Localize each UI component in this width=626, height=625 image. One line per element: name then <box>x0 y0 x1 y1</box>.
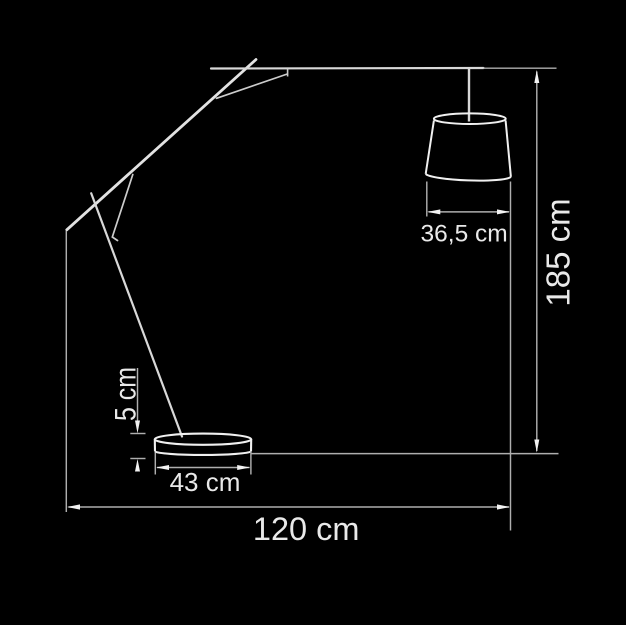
svg-text:120 cm: 120 cm <box>253 511 360 547</box>
svg-text:36,5 cm: 36,5 cm <box>421 220 508 247</box>
svg-text:43 cm: 43 cm <box>170 467 241 497</box>
svg-text:5 cm: 5 cm <box>108 367 142 421</box>
svg-text:185 cm: 185 cm <box>540 198 577 306</box>
